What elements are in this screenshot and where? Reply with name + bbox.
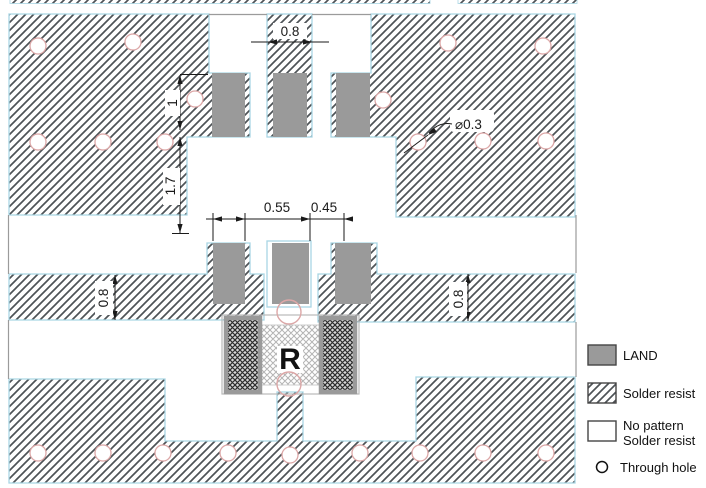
dim-label: 0.55 (264, 200, 290, 215)
land-pads (212, 73, 371, 304)
pad-top-center (273, 73, 307, 137)
legend-label-no-pattern-1: No pattern (623, 418, 684, 433)
pad-mid-right (335, 243, 371, 304)
through-hole (282, 447, 298, 463)
through-hole (30, 134, 46, 150)
through-hole (538, 133, 554, 149)
resistor-label: R (279, 343, 301, 376)
legend-item-land: LAND (588, 345, 658, 365)
resistor-terminal-right (321, 318, 355, 392)
dim-label: ⌀0.3 (455, 117, 482, 132)
through-hole (440, 35, 456, 51)
through-hole (125, 34, 141, 50)
through-hole (95, 134, 111, 150)
legend-item-solder-resist: Solder resist (588, 383, 696, 403)
land-pattern-figure: R 0.8 (0, 0, 706, 488)
pad-mid-left (213, 243, 245, 304)
dim-center-spacing: 0.55 0.45 (206, 200, 353, 241)
dim-label: 0.8 (281, 24, 300, 39)
land-swatch-icon (588, 345, 616, 365)
through-hole (157, 134, 173, 150)
dim-label: 0.8 (96, 289, 111, 308)
pad-top-left (212, 73, 245, 137)
pad-top-right (336, 73, 370, 137)
through-hole (187, 91, 203, 107)
through-hole (220, 445, 236, 461)
dim-label: 0.45 (311, 200, 337, 215)
through-hole-swatch-icon (597, 462, 608, 473)
legend-item-through-hole: Through hole (597, 460, 697, 475)
legend-label-no-pattern-2: Solder resist (623, 433, 696, 448)
through-hole (155, 445, 171, 461)
dim-label: 0.8 (451, 290, 466, 309)
through-hole (475, 445, 491, 461)
land-pattern-diagram: R 0.8 (0, 0, 706, 488)
legend-label-through-hole: Through hole (620, 460, 697, 475)
through-hole (30, 38, 46, 54)
through-hole (412, 445, 428, 461)
legend-item-no-pattern: No pattern Solder resist (588, 418, 696, 448)
top-edge-strip-right (458, 0, 577, 4)
bottom-block (9, 377, 575, 483)
top-edge-strip-left (10, 0, 430, 4)
legend-label-land: LAND (623, 348, 658, 363)
legend: LAND Solder resist No pattern Solder res… (588, 345, 697, 475)
resistor-terminal-left (226, 318, 260, 392)
dim-label: 1 (165, 99, 180, 107)
legend-label-solder-resist: Solder resist (623, 386, 696, 401)
through-hole (95, 445, 111, 461)
dim-label: 1.7 (163, 177, 178, 196)
through-hole (30, 445, 46, 461)
through-hole (538, 445, 554, 461)
through-hole (352, 445, 368, 461)
no-pattern-swatch-icon (588, 421, 616, 441)
through-hole (535, 38, 551, 54)
through-hole (475, 133, 491, 149)
through-hole (375, 92, 391, 108)
solder-resist-swatch-icon (588, 383, 616, 403)
pad-mid-center (272, 243, 309, 304)
